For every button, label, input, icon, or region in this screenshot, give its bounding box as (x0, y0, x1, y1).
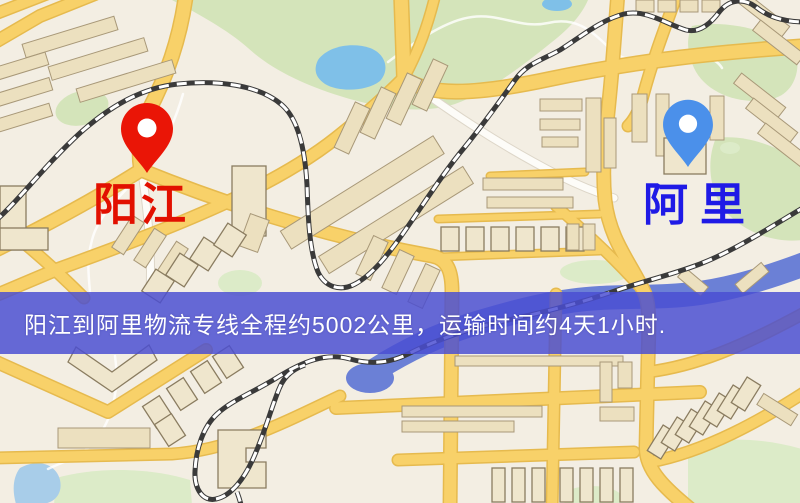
route-info-banner: 阳江到阿里物流专线全程约5002公里，运输时间约4天1小时. (0, 292, 800, 354)
map-view: 阳江 阿里 阳江到阿里物流专线全程约5002公里，运输时间约4天1小时. (0, 0, 800, 503)
map-canvas[interactable]: 阳江 阿里 (0, 0, 800, 503)
route-banner-text: 阳江到阿里物流专线全程约5002公里，运输时间约4天1小时. (24, 306, 666, 340)
destination-label: 阿里 (643, 179, 757, 230)
origin-pin-icon[interactable] (121, 103, 173, 173)
origin-label: 阳江 (93, 179, 189, 230)
